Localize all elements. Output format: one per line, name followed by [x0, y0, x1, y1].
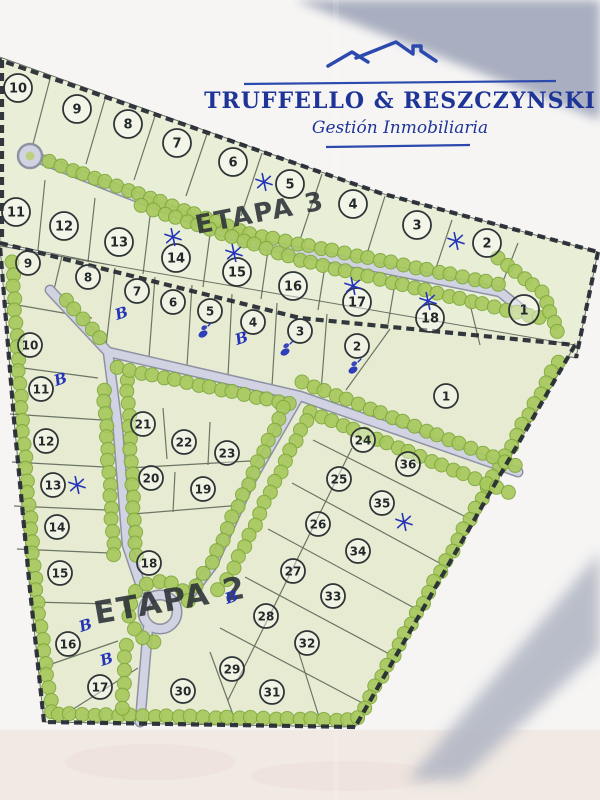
lot-marker: 14	[45, 515, 69, 539]
lot-marker: 32	[295, 631, 319, 655]
lot-number: 12	[38, 434, 55, 448]
tree-icon	[123, 363, 137, 377]
lot-marker: 15	[48, 561, 72, 585]
lot-marker: 12	[34, 429, 58, 453]
tree-icon	[205, 555, 219, 569]
lot-marker: 14	[162, 244, 190, 272]
tree-icon	[117, 663, 131, 677]
lot-marker: 16	[56, 632, 80, 656]
lot-marker: 25	[327, 467, 351, 491]
lot-number: 2	[353, 339, 361, 353]
lot-marker: 4	[339, 190, 367, 218]
lot-marker: 2	[345, 334, 369, 358]
lot-number: 36	[400, 457, 417, 471]
tree-icon	[260, 392, 274, 406]
lot-number: 27	[285, 564, 302, 578]
tree-icon	[220, 710, 234, 724]
lot-marker: 27	[281, 559, 305, 583]
lot-number: 8	[84, 270, 92, 284]
lot-marker: 6	[161, 290, 185, 314]
lot-marker: 11	[2, 198, 30, 226]
tree-icon	[99, 708, 113, 722]
lot-marker: 12	[50, 212, 78, 240]
lot-number: 15	[52, 566, 69, 580]
tree-icon	[101, 453, 115, 467]
lot-number: 10	[22, 338, 39, 352]
lot-number: 25	[331, 472, 348, 486]
tree-icon	[93, 331, 107, 345]
lot-number: 7	[133, 284, 141, 298]
tree-icon	[14, 401, 28, 415]
lot-number: 14	[49, 520, 66, 534]
lot-number: 17	[348, 296, 366, 311]
lot-marker: 30	[171, 679, 195, 703]
tree-icon	[183, 709, 197, 723]
lot-marker: 35	[370, 491, 394, 515]
tree-icon	[202, 380, 216, 394]
tree-icon	[11, 364, 25, 378]
lot-number: 31	[264, 685, 281, 699]
lot-number: 10	[9, 82, 27, 97]
lot-number: 4	[249, 315, 257, 329]
tree-icon	[501, 485, 515, 499]
tree-icon	[244, 710, 258, 724]
tree-icon	[443, 267, 457, 281]
tree-icon	[237, 387, 251, 401]
tree-icon	[115, 688, 129, 702]
lot-number: 9	[24, 256, 32, 270]
lot-marker: 13	[105, 228, 133, 256]
tree-icon	[62, 707, 76, 721]
logo-title: TRUFFELLO & RESZCZYNSKI	[204, 88, 596, 114]
lot-number: 4	[348, 198, 357, 213]
lot-marker: 31	[260, 680, 284, 704]
lot-number: 35	[374, 496, 391, 510]
lot-number: 13	[45, 478, 62, 492]
tree-icon	[121, 396, 135, 410]
lot-marker: 18	[137, 551, 161, 575]
map-svg: TRUFFELLO & RESZCZYNSKI Gestión Inmobili…	[0, 0, 600, 800]
lot-marker: 6	[219, 148, 247, 176]
tree-icon	[97, 394, 111, 408]
tree-icon	[225, 384, 239, 398]
lot-marker: 34	[346, 539, 370, 563]
lot-number: 20	[143, 471, 160, 485]
culdesac-bulb-island	[26, 152, 35, 161]
tree-icon	[256, 711, 270, 725]
lot-number: 1	[442, 389, 450, 403]
lot-marker: 5	[198, 299, 222, 323]
paper-stain	[65, 744, 235, 780]
lot-marker: 3	[403, 211, 431, 239]
lot-marker: 9	[63, 95, 91, 123]
lot-number: 19	[195, 482, 212, 496]
lot-number: 8	[123, 118, 132, 133]
lot-number: 11	[7, 206, 25, 221]
tree-icon	[420, 262, 434, 276]
tree-icon	[304, 712, 318, 726]
lot-marker: 20	[139, 466, 163, 490]
lot-number: 2	[482, 237, 491, 252]
tree-icon	[98, 407, 112, 421]
lot-marker: 10	[4, 74, 32, 102]
logo-subtitle: Gestión Inmobiliaria	[312, 118, 488, 138]
lot-marker: 7	[163, 129, 191, 157]
lot-number: 3	[412, 219, 421, 234]
tree-icon	[397, 258, 411, 272]
tree-icon	[6, 279, 20, 293]
lot-marker: 17	[88, 675, 112, 699]
tree-icon	[17, 437, 31, 451]
lot-number: 12	[55, 220, 73, 235]
lot-marker: 15	[223, 258, 251, 286]
lot-number: 34	[350, 544, 367, 558]
lot-number: 14	[167, 252, 185, 267]
lot-marker: 5	[276, 170, 304, 198]
lot-number: 17	[92, 680, 109, 694]
lot-number: 5	[285, 178, 294, 193]
tree-icon	[145, 368, 159, 382]
tree-icon	[550, 324, 564, 338]
tree-icon	[117, 650, 131, 664]
lot-number: 11	[33, 382, 50, 396]
tree-icon	[196, 710, 210, 724]
lot-marker: 36	[396, 452, 420, 476]
tree-icon	[75, 708, 89, 722]
subdivision-map-photo: TRUFFELLO & RESZCZYNSKI Gestión Inmobili…	[0, 0, 600, 800]
tree-icon	[110, 360, 124, 374]
tree-icon	[123, 442, 137, 456]
lot-number: 26	[310, 517, 327, 531]
tree-icon	[100, 430, 114, 444]
lot-number: 15	[228, 266, 246, 281]
lot-number: 30	[175, 684, 192, 698]
lot-number: 28	[258, 609, 275, 623]
tree-icon	[304, 255, 318, 269]
lot-number: 32	[299, 636, 316, 650]
tree-icon	[13, 377, 27, 391]
lot-number: 1	[519, 304, 528, 319]
lot-marker: 16	[279, 272, 307, 300]
tree-icon	[384, 255, 398, 269]
lot-marker: 10	[18, 333, 42, 357]
lot-marker: 28	[254, 604, 278, 628]
lot-marker: 11	[29, 377, 53, 401]
lot-number: 7	[172, 137, 181, 152]
tree-icon	[159, 709, 173, 723]
lot-marker: 9	[16, 251, 40, 275]
tree-icon	[456, 270, 470, 284]
lot-marker: 26	[306, 512, 330, 536]
tree-icon	[325, 243, 339, 257]
tree-icon	[168, 372, 182, 386]
tree-icon	[361, 251, 375, 265]
lot-marker: 22	[172, 430, 196, 454]
lot-marker: 29	[220, 657, 244, 681]
tree-icon	[115, 701, 129, 715]
lot-number: 29	[224, 662, 241, 676]
lot-marker: 23	[215, 441, 239, 465]
tree-icon	[302, 239, 316, 253]
tree-icon	[280, 712, 294, 726]
lot-number: 13	[110, 236, 128, 251]
lot-number: 21	[135, 417, 152, 431]
lot-number: 16	[284, 280, 302, 295]
tree-icon	[491, 277, 505, 291]
lot-number: 24	[355, 433, 372, 447]
lot-number: 6	[169, 295, 177, 309]
lot-number: 9	[72, 103, 81, 118]
tree-icon	[7, 303, 21, 317]
lot-marker: 8	[76, 265, 100, 289]
lot-number: 16	[60, 637, 77, 651]
lot-marker: 24	[351, 428, 375, 452]
lot-number: 18	[421, 312, 439, 327]
lot-marker: 3	[288, 319, 312, 343]
lot-number: 18	[141, 556, 158, 570]
lot-marker: 7	[125, 279, 149, 303]
lot-number: 5	[206, 304, 214, 318]
tree-icon	[338, 246, 352, 260]
tree-icon	[106, 524, 120, 538]
tree-icon	[126, 501, 140, 515]
tree-icon	[103, 489, 117, 503]
lot-marker: 33	[321, 584, 345, 608]
tree-icon	[479, 274, 493, 288]
tree-icon	[125, 478, 139, 492]
tree-icon	[180, 375, 194, 389]
lot-marker: 19	[191, 477, 215, 501]
tree-icon	[9, 316, 23, 330]
lot-number: 33	[325, 589, 342, 603]
lot-marker: 13	[41, 473, 65, 497]
lot-marker: 2	[473, 229, 501, 257]
lot-number: 23	[219, 446, 236, 460]
lot-marker: 21	[131, 412, 155, 436]
tree-icon	[128, 536, 142, 550]
lot-number: 6	[228, 156, 237, 171]
lot-marker: 1	[434, 384, 458, 408]
lot-marker: 8	[114, 110, 142, 138]
tree-icon	[136, 709, 150, 723]
lot-number: 3	[296, 324, 304, 338]
tree-icon	[104, 512, 118, 526]
tree-icon	[127, 513, 141, 527]
lot-marker: 1	[509, 295, 539, 325]
tree-icon	[107, 548, 121, 562]
lot-number: 22	[176, 435, 193, 449]
tree-icon	[102, 466, 116, 480]
tree-icon	[42, 681, 56, 695]
